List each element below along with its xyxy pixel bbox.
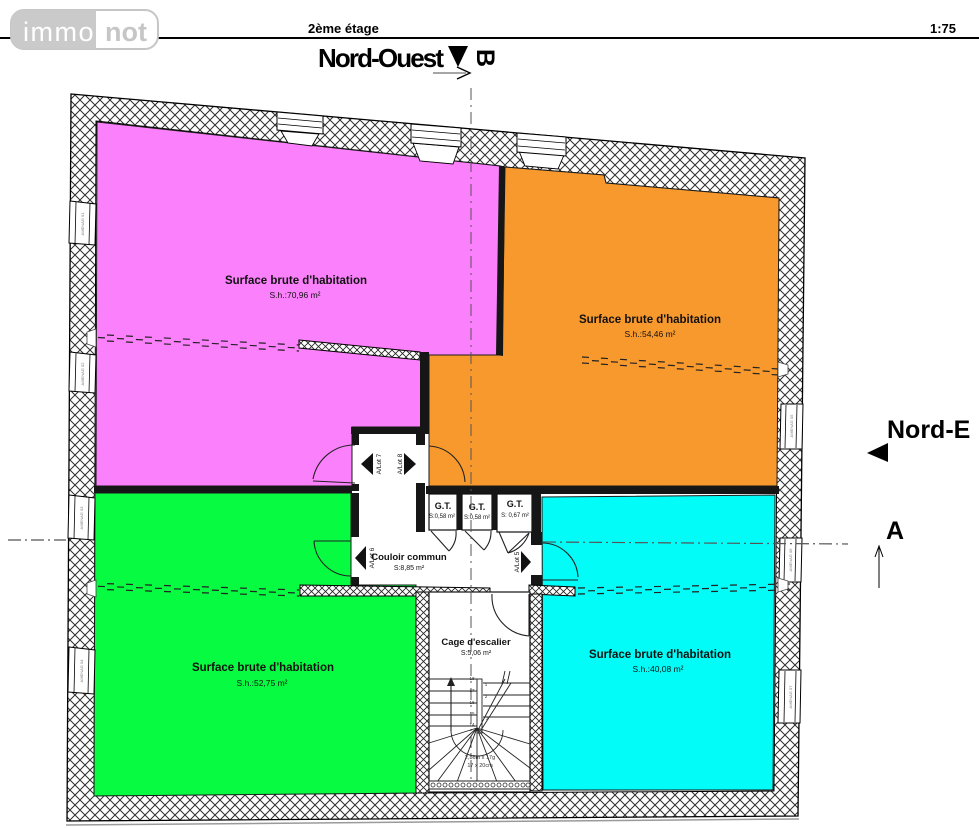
svg-text:G.T.: G.T. [435,501,452,511]
svg-text:Nord-Ouest: Nord-Ouest [318,43,444,73]
svg-text:S:5,06 m²: S:5,06 m² [461,650,492,657]
svg-text:18: 18 [469,676,475,681]
svg-text:AMENAG 05: AMENAG 05 [789,414,794,438]
svg-text:S.h.:54,46 m²: S.h.:54,46 m² [624,329,675,339]
svg-text:A: A [886,517,904,545]
svg-text:AMENAG 01: AMENAG 01 [80,212,85,236]
svg-text:Surface brute d'habitation: Surface brute d'habitation [192,662,334,674]
svg-text:Cage d'escalier: Cage d'escalier [441,637,511,648]
svg-text:S: 0,67 m²: S: 0,67 m² [501,513,529,519]
svg-text:14: 14 [469,722,475,727]
svg-text:not: not [105,17,147,47]
svg-text:immo: immo [23,17,95,47]
svg-text:S:0,58 m²: S:0,58 m² [429,514,455,520]
svg-text:S.h.:52,75 m²: S.h.:52,75 m² [236,678,287,688]
svg-text:2ème étage: 2ème étage [308,21,379,36]
svg-text:15: 15 [469,711,475,716]
svg-text:16: 16 [469,700,475,705]
svg-text:S:8,85 m²: S:8,85 m² [394,565,425,572]
svg-text:A/Lot 8: A/Lot 8 [397,453,404,474]
svg-text:G.T.: G.T. [507,499,524,509]
svg-text:A/Lot 7: A/Lot 7 [376,453,383,474]
svg-text:AMENAG 03: AMENAG 03 [79,506,84,530]
svg-text:S:0,58 m²: S:0,58 m² [464,515,490,521]
svg-text:AMENAG 02: AMENAG 02 [80,362,85,386]
svg-text:17: 17 [469,688,475,693]
svg-text:17 x 20cm: 17 x 20cm [467,763,493,769]
svg-text:Surface brute d'habitation: Surface brute d'habitation [589,649,731,661]
svg-text:Couloir commun: Couloir commun [371,552,447,563]
svg-text:B: B [471,49,499,67]
svg-text:S.h.:70,96 m²: S.h.:70,96 m² [269,290,320,300]
svg-text:Surface brute d'habitation: Surface brute d'habitation [225,275,367,287]
svg-text:S.h.:40,08 m²: S.h.:40,08 m² [632,664,683,674]
svg-text:A/Lot 6: A/Lot 6 [369,547,376,568]
svg-text:AMENAG 04: AMENAG 04 [79,659,84,683]
svg-text:A/Lot 5: A/Lot 5 [514,551,521,572]
svg-text:AMENAG 06: AMENAG 06 [788,548,793,572]
svg-text:Nord-E: Nord-E [887,416,970,444]
svg-text:Surface brute d'habitation: Surface brute d'habitation [579,314,721,326]
svg-text:AMENAG 07: AMENAG 07 [788,685,793,709]
svg-text:1:75: 1:75 [930,21,956,36]
svg-text:2,86m x 17g: 2,86m x 17g [465,755,495,761]
